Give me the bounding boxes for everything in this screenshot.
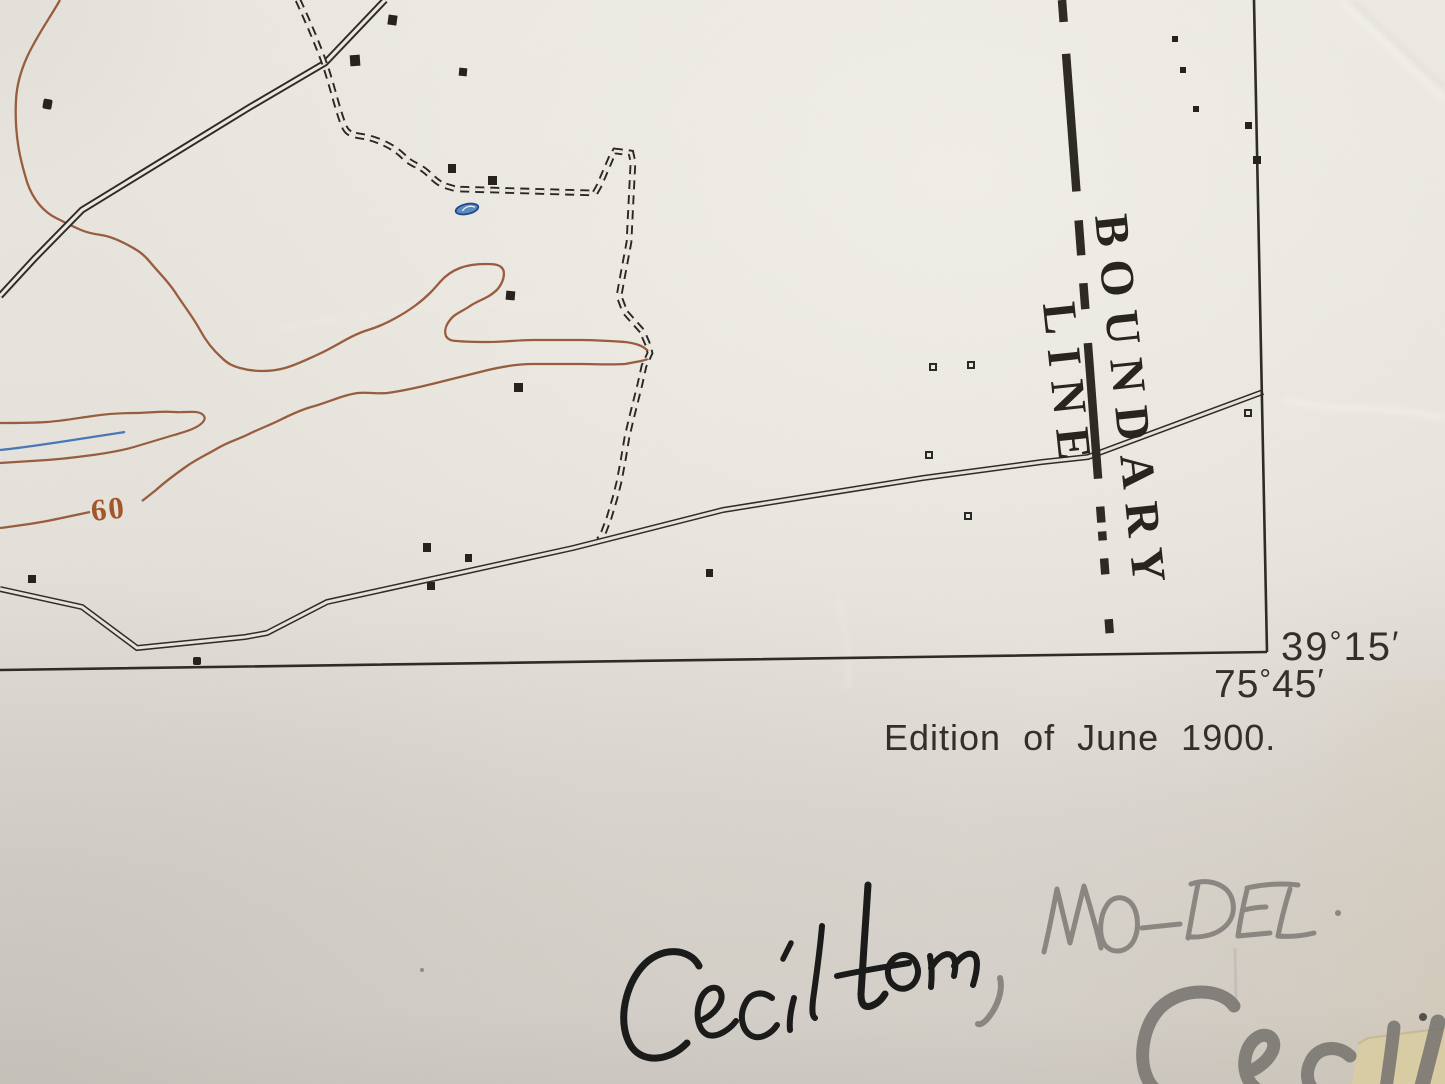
svg-text:60: 60: [89, 489, 127, 527]
svg-text:Edition of June 1900.: Edition of June 1900.: [884, 717, 1276, 758]
